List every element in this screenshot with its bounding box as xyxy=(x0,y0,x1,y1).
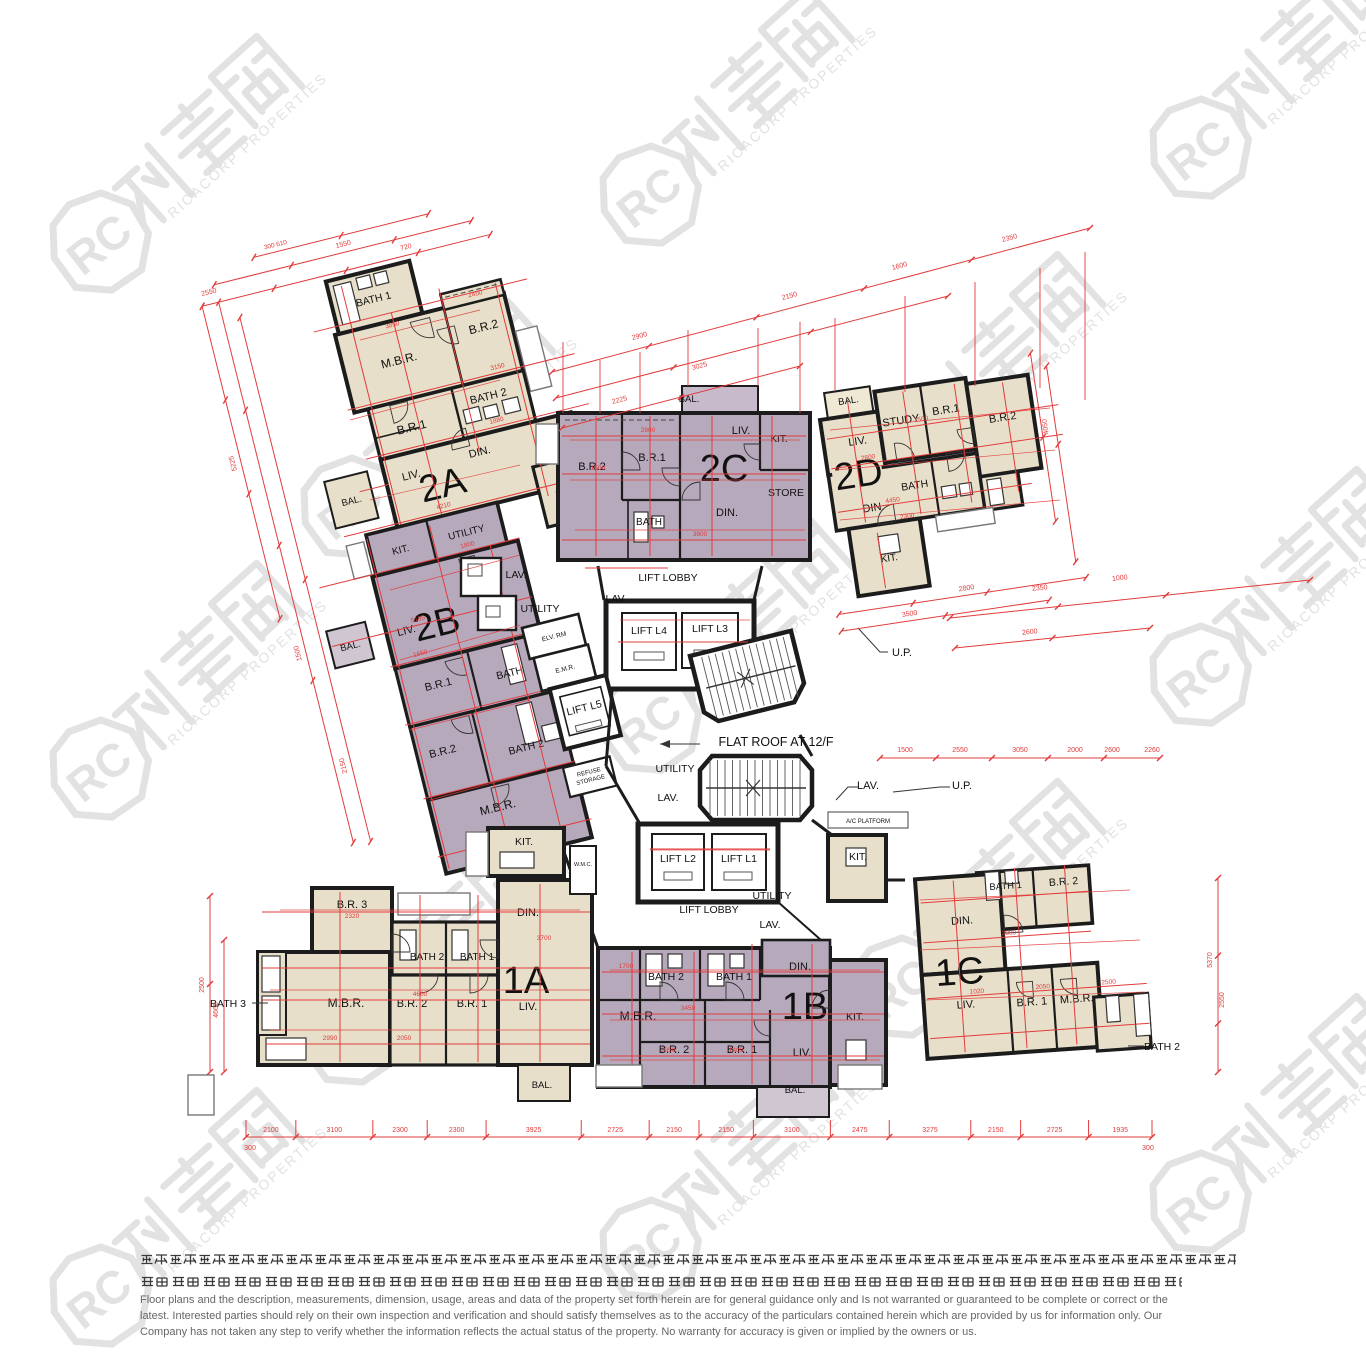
svg-text:3925: 3925 xyxy=(526,1127,542,1134)
svg-text:UTILITY: UTILITY xyxy=(655,763,694,775)
svg-text:2300: 2300 xyxy=(449,1127,465,1134)
svg-text:BAL.: BAL. xyxy=(785,1085,806,1096)
svg-text:LAV.: LAV. xyxy=(505,569,526,581)
svg-text:2300: 2300 xyxy=(392,1127,408,1134)
svg-text:2990: 2990 xyxy=(323,1035,338,1042)
svg-text:A/C PLATFORM: A/C PLATFORM xyxy=(846,819,890,825)
svg-text:B.R.1: B.R.1 xyxy=(638,452,666,464)
svg-text:Company has not taken any step: Company has not taken any step to verify… xyxy=(140,1326,977,1338)
svg-text:2150: 2150 xyxy=(718,1127,734,1134)
svg-text:LIFT L4: LIFT L4 xyxy=(631,625,667,637)
svg-text:KIT.: KIT. xyxy=(846,1011,864,1023)
svg-text:2475: 2475 xyxy=(852,1127,868,1134)
svg-text:3100: 3100 xyxy=(327,1127,343,1134)
svg-text:2320: 2320 xyxy=(345,913,360,920)
svg-text:latest. Interested parties sho: latest. Interested parties should rely o… xyxy=(140,1310,1162,1322)
svg-text:2800: 2800 xyxy=(641,427,656,434)
svg-text:STORE: STORE xyxy=(768,487,804,499)
svg-text:2500: 2500 xyxy=(199,977,206,993)
svg-text:DIN.: DIN. xyxy=(716,507,738,519)
svg-text:LIFT L3: LIFT L3 xyxy=(692,623,728,635)
svg-text:Floor plans and the descriptio: Floor plans and the description, measure… xyxy=(140,1294,1168,1306)
svg-text:DIN.: DIN. xyxy=(517,907,539,919)
svg-text:3275: 3275 xyxy=(922,1127,938,1134)
svg-text:DIN.: DIN. xyxy=(951,914,974,928)
svg-text:KIT.: KIT. xyxy=(849,851,867,863)
svg-text:2C: 2C xyxy=(700,448,749,490)
svg-text:2050: 2050 xyxy=(661,1047,676,1054)
svg-text:LIV.: LIV. xyxy=(519,1001,538,1013)
svg-text:2000: 2000 xyxy=(1067,747,1083,754)
svg-text:UTILITY: UTILITY xyxy=(752,890,791,902)
svg-text:BATH 2: BATH 2 xyxy=(410,952,445,963)
svg-text:BATH: BATH xyxy=(636,517,662,528)
svg-text:M.B.R.: M.B.R. xyxy=(328,996,365,1010)
svg-text:LAV.: LAV. xyxy=(605,593,626,605)
svg-text:2150: 2150 xyxy=(988,1127,1004,1134)
svg-text:300: 300 xyxy=(244,1145,256,1152)
svg-text:1500: 1500 xyxy=(897,747,913,754)
svg-text:BATH 1: BATH 1 xyxy=(716,971,752,983)
svg-text:2725: 2725 xyxy=(607,1127,623,1134)
svg-text:UTILITY: UTILITY xyxy=(520,603,559,615)
svg-text:LIV.: LIV. xyxy=(732,425,751,437)
svg-text:BATH 2: BATH 2 xyxy=(648,971,684,983)
svg-text:BAL.: BAL. xyxy=(532,1080,553,1091)
svg-text:4665: 4665 xyxy=(213,1002,220,1018)
svg-text:KIT.: KIT. xyxy=(515,836,533,848)
svg-text:U.P.: U.P. xyxy=(892,647,912,659)
svg-text:3800: 3800 xyxy=(693,531,708,538)
svg-text:3100: 3100 xyxy=(784,1127,800,1134)
svg-text:LAV.: LAV. xyxy=(759,919,780,931)
svg-text:U.P.: U.P. xyxy=(952,780,972,792)
svg-text:LIFT L2: LIFT L2 xyxy=(660,853,696,865)
svg-text:2260: 2260 xyxy=(1144,747,1160,754)
svg-text:2550: 2550 xyxy=(952,747,968,754)
svg-text:3050: 3050 xyxy=(1012,747,1028,754)
svg-text:2150: 2150 xyxy=(666,1127,682,1134)
svg-text:3700: 3700 xyxy=(537,935,552,942)
svg-text:LIV.: LIV. xyxy=(956,998,975,1011)
svg-text:LIFT LOBBY: LIFT LOBBY xyxy=(638,572,697,584)
svg-text:LIFT L1: LIFT L1 xyxy=(721,853,757,865)
svg-text:1500: 1500 xyxy=(591,465,606,472)
svg-text:M.B.R.: M.B.R. xyxy=(620,1009,657,1023)
svg-text:2100: 2100 xyxy=(263,1127,279,1134)
svg-text:2600: 2600 xyxy=(1104,747,1120,754)
svg-text:LIV.: LIV. xyxy=(793,1047,812,1059)
svg-text:B.R. 2: B.R. 2 xyxy=(1049,875,1079,889)
svg-text:2050: 2050 xyxy=(397,1035,412,1042)
svg-text:BATH 1: BATH 1 xyxy=(989,880,1022,893)
svg-text:1A: 1A xyxy=(503,960,550,1002)
svg-text:FLAT ROOF AT 12/F: FLAT ROOF AT 12/F xyxy=(718,735,833,749)
svg-text:1935: 1935 xyxy=(1113,1127,1129,1134)
svg-text:1700: 1700 xyxy=(619,963,634,970)
svg-text:2550: 2550 xyxy=(1219,992,1226,1008)
svg-text:1400: 1400 xyxy=(729,1047,744,1054)
svg-text:LAV.: LAV. xyxy=(857,780,879,792)
svg-text:W.M.C.: W.M.C. xyxy=(574,862,592,868)
svg-text:B.R. 3: B.R. 3 xyxy=(337,899,368,911)
svg-text:BATH 2: BATH 2 xyxy=(1144,1041,1180,1053)
svg-text:LIFT LOBBY: LIFT LOBBY xyxy=(679,904,738,916)
svg-text:3450: 3450 xyxy=(681,1005,696,1012)
svg-text:BATH 1: BATH 1 xyxy=(460,952,495,963)
svg-text:5370: 5370 xyxy=(1207,952,1214,968)
svg-text:300: 300 xyxy=(1142,1145,1154,1152)
svg-text:DIN.: DIN. xyxy=(789,961,811,973)
svg-text:LAV.: LAV. xyxy=(657,792,678,804)
svg-text:2725: 2725 xyxy=(1047,1127,1063,1134)
